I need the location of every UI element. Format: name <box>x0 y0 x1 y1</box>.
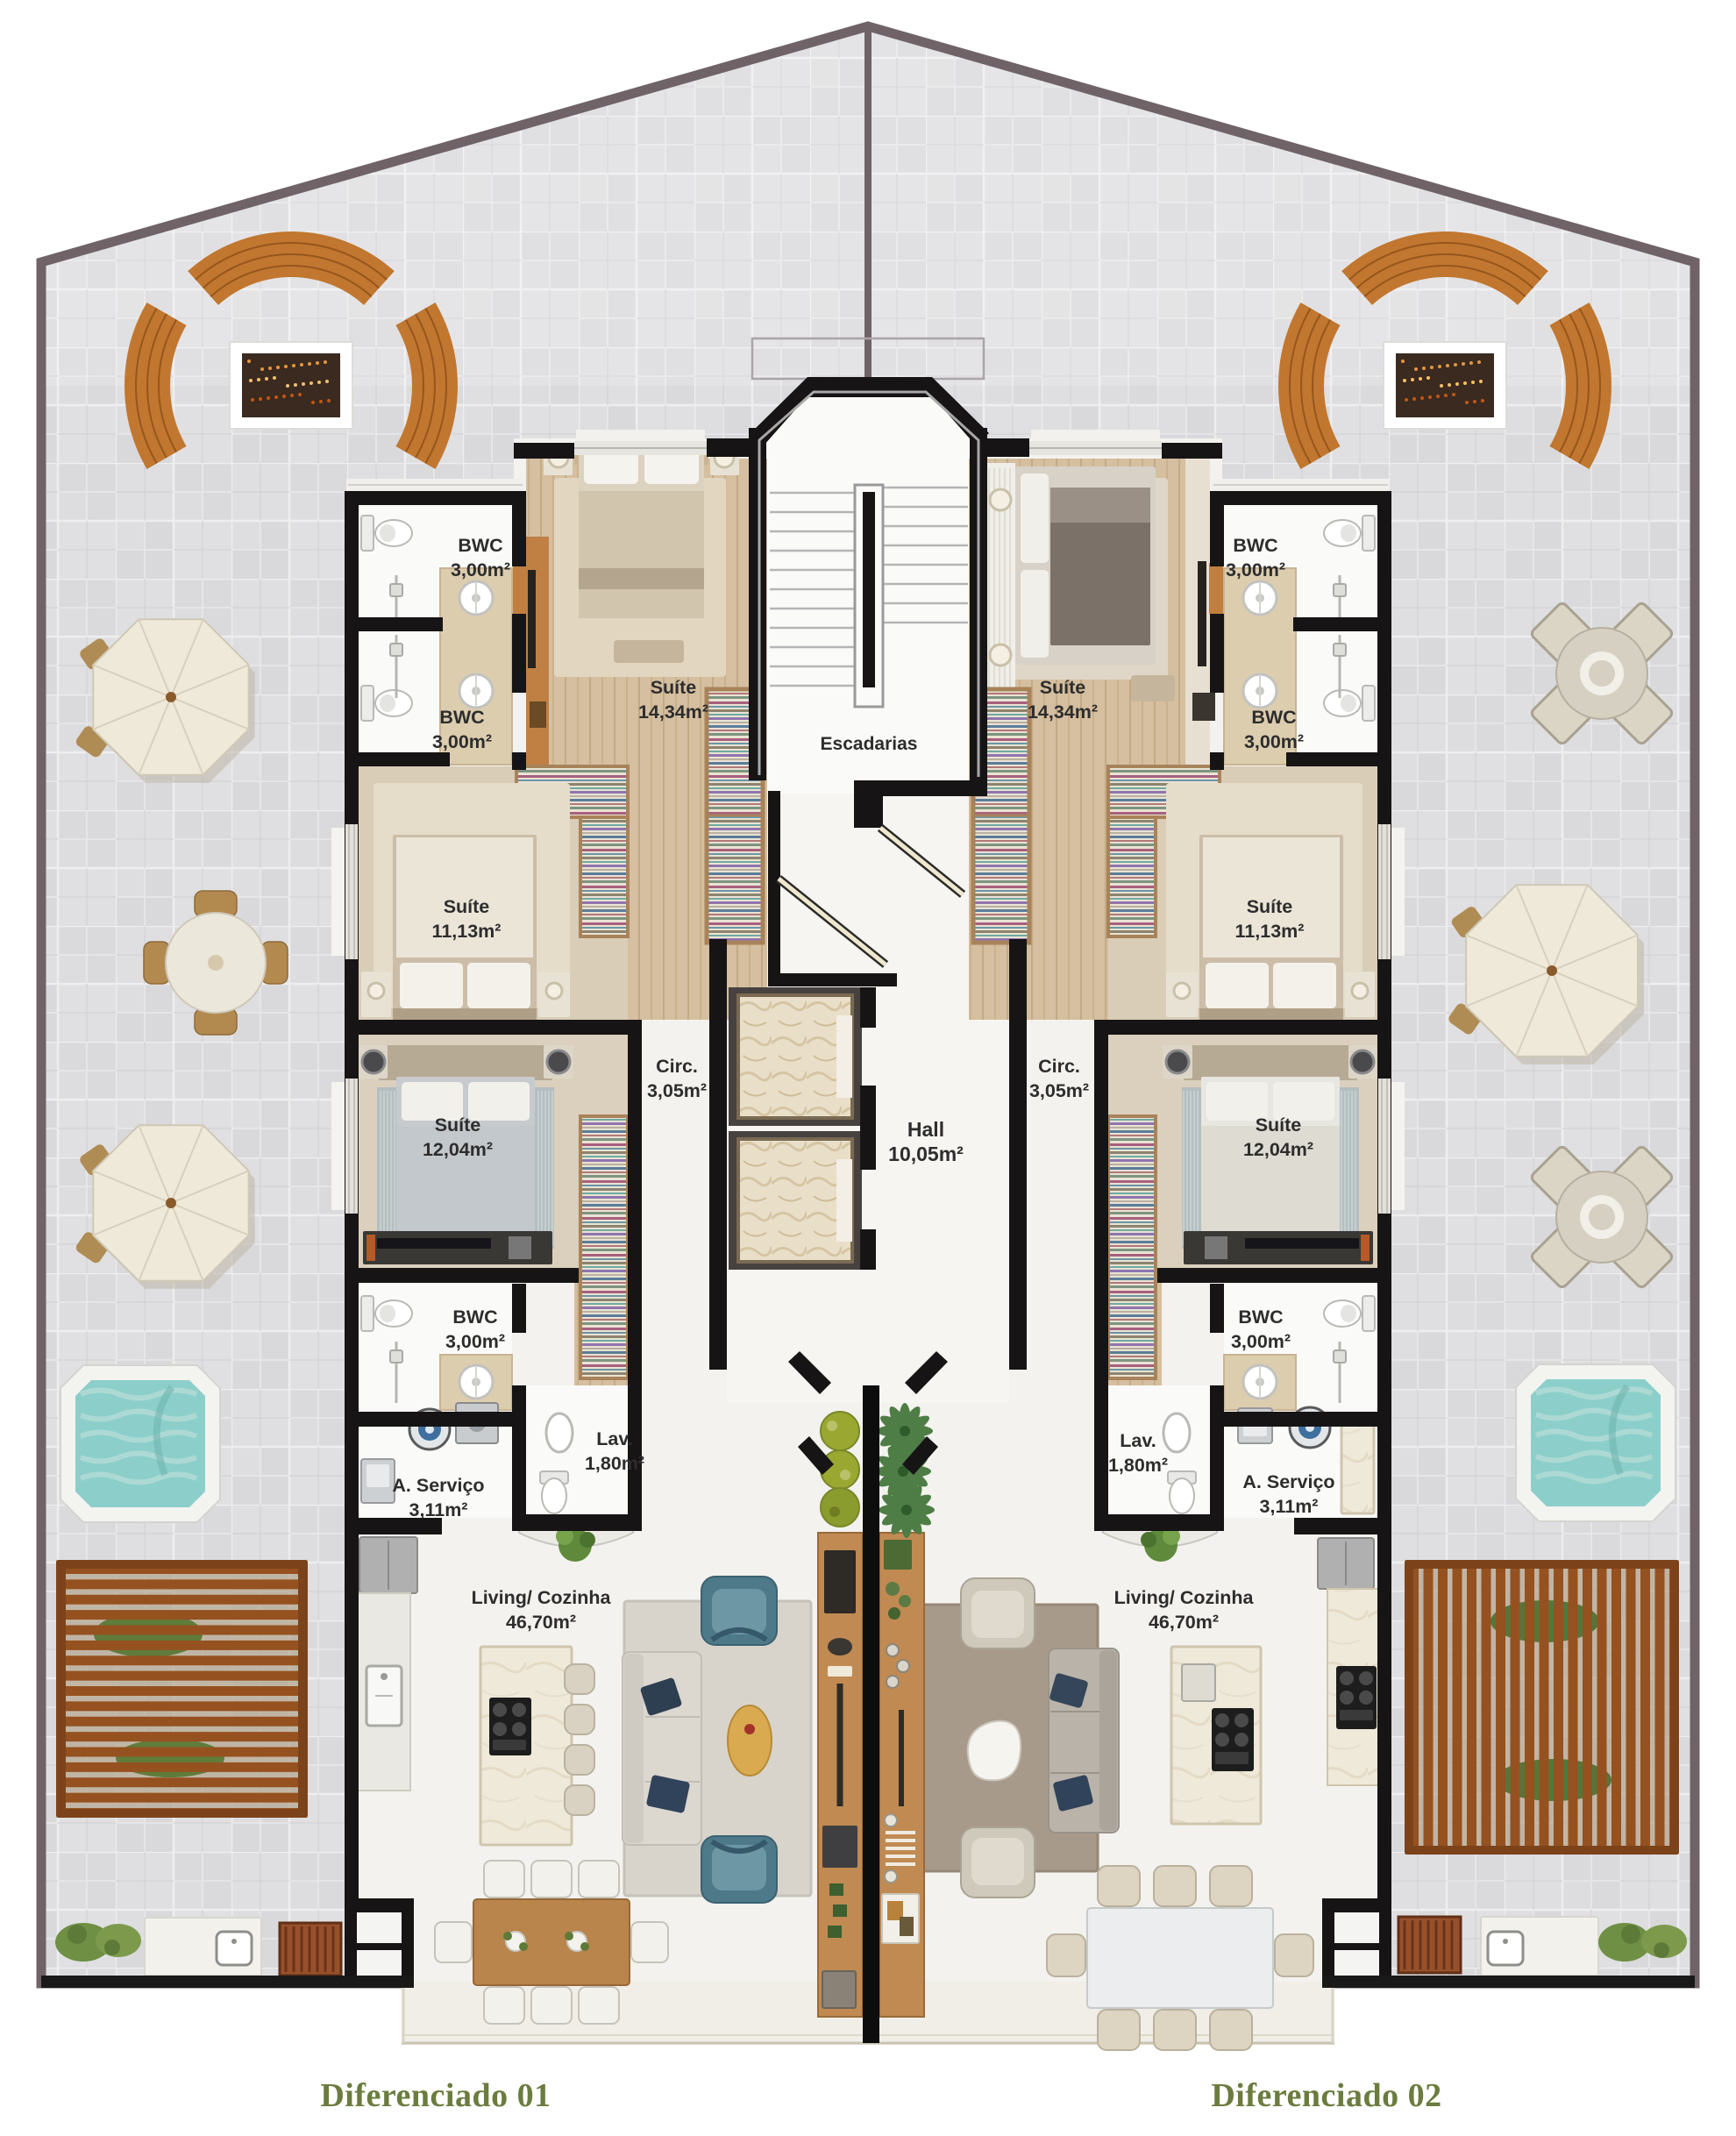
svg-text:3,11m²: 3,11m² <box>409 1499 468 1520</box>
svg-text:Lav.: Lav. <box>1120 1430 1156 1451</box>
svg-text:46,70m²: 46,70m² <box>1149 1612 1219 1633</box>
svg-text:Suíte: Suíte <box>1040 677 1086 698</box>
svg-text:3,00m²: 3,00m² <box>445 1331 505 1352</box>
svg-text:BWC: BWC <box>1251 707 1296 728</box>
svg-text:14,34m²: 14,34m² <box>638 701 708 723</box>
svg-text:BWC: BWC <box>439 707 484 728</box>
svg-text:3,05m²: 3,05m² <box>1029 1080 1089 1101</box>
svg-text:Suíte: Suíte <box>651 677 697 698</box>
svg-text:Circ.: Circ. <box>656 1056 698 1077</box>
svg-text:BWC: BWC <box>452 1307 497 1328</box>
svg-text:BWC: BWC <box>1238 1307 1283 1328</box>
svg-text:3,05m²: 3,05m² <box>647 1080 707 1101</box>
svg-text:10,05m²: 10,05m² <box>888 1143 964 1165</box>
svg-text:Living/ Cozinha: Living/ Cozinha <box>472 1587 612 1608</box>
svg-text:Suíte: Suíte <box>435 1114 481 1136</box>
svg-text:BWC: BWC <box>1233 535 1277 556</box>
svg-text:3,00m²: 3,00m² <box>1244 731 1304 752</box>
svg-text:3,00m²: 3,00m² <box>451 559 510 580</box>
svg-text:1,80m²: 1,80m² <box>585 1453 644 1474</box>
svg-text:Suíte: Suíte <box>1256 1114 1302 1136</box>
svg-text:Living/ Cozinha: Living/ Cozinha <box>1114 1587 1255 1608</box>
svg-text:3,00m²: 3,00m² <box>432 731 492 752</box>
svg-text:11,13m²: 11,13m² <box>1235 921 1305 942</box>
svg-text:Hall: Hall <box>907 1118 944 1141</box>
svg-text:1,80m²: 1,80m² <box>1108 1455 1168 1476</box>
svg-text:12,04m²: 12,04m² <box>1243 1139 1313 1160</box>
svg-text:Lav.: Lav. <box>596 1428 632 1449</box>
svg-text:3,00m²: 3,00m² <box>1231 1331 1291 1352</box>
svg-text:Circ.: Circ. <box>1038 1056 1080 1077</box>
svg-text:Suíte: Suíte <box>1247 896 1293 917</box>
svg-text:Diferenciado 01: Diferenciado 01 <box>320 2077 551 2114</box>
svg-text:Suíte: Suíte <box>444 896 490 917</box>
svg-text:14,34m²: 14,34m² <box>1028 701 1098 723</box>
svg-text:11,13m²: 11,13m² <box>432 921 502 942</box>
svg-text:3,11m²: 3,11m² <box>1260 1496 1319 1517</box>
svg-text:A. Serviço: A. Serviço <box>1242 1471 1334 1492</box>
svg-text:46,70m²: 46,70m² <box>506 1612 576 1633</box>
svg-text:A. Serviço: A. Serviço <box>392 1475 484 1496</box>
svg-text:Escadarias: Escadarias <box>821 734 918 754</box>
svg-text:Diferenciado 02: Diferenciado 02 <box>1211 2077 1441 2114</box>
svg-text:BWC: BWC <box>458 535 502 556</box>
svg-text:3,00m²: 3,00m² <box>1226 559 1285 580</box>
svg-text:12,04m²: 12,04m² <box>423 1139 493 1160</box>
